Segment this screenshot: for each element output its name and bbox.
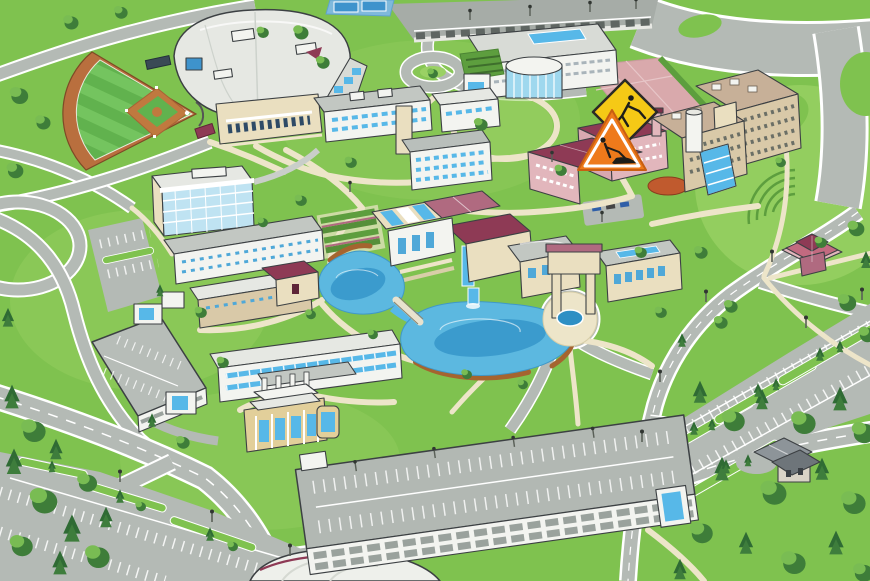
garage-stair-tower: [656, 485, 691, 527]
tennis-courts[interactable]: [326, 0, 394, 16]
campus-map-frame: [0, 0, 870, 581]
campus-map: [0, 0, 870, 581]
roof-stair-hut: [299, 451, 327, 470]
waterfall: [466, 288, 480, 309]
arch-tower-fountain[interactable]: [543, 244, 602, 346]
library-rotunda[interactable]: [460, 24, 618, 98]
glass-office-building[interactable]: [152, 166, 254, 236]
utility-hut: [162, 292, 184, 308]
fountain: [557, 310, 583, 326]
brick-court: [648, 177, 688, 195]
cylinder-tower: [686, 112, 702, 152]
louver-panel: [186, 58, 202, 70]
rotunda: [506, 57, 562, 98]
